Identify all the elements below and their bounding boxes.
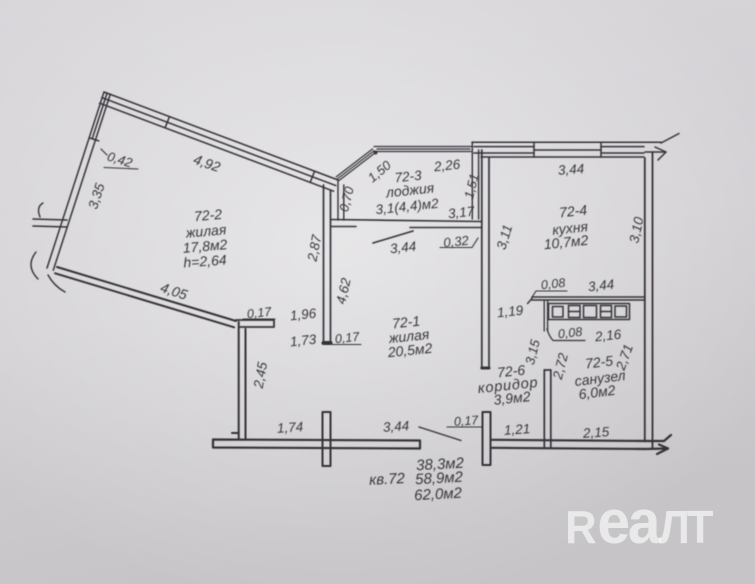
- svg-text:h=2,64: h=2,64: [183, 251, 227, 270]
- svg-text:0,17: 0,17: [246, 305, 273, 322]
- svg-text:кв.72: кв.72: [369, 470, 406, 489]
- svg-text:1,74: 1,74: [276, 419, 303, 436]
- svg-text:0,32: 0,32: [443, 233, 470, 251]
- svg-text:3,44: 3,44: [557, 161, 584, 178]
- svg-text:2,15: 2,15: [581, 424, 610, 441]
- svg-text:Т: Т: [687, 501, 714, 553]
- svg-text:a: a: [628, 487, 661, 557]
- svg-text:0,17: 0,17: [453, 413, 479, 429]
- svg-text:3,44: 3,44: [587, 277, 615, 295]
- svg-text:1,96: 1,96: [289, 306, 317, 324]
- svg-text:Л: Л: [659, 501, 690, 553]
- svg-text:0,08: 0,08: [540, 276, 566, 292]
- svg-text:1,73: 1,73: [289, 332, 317, 350]
- svg-text:e: e: [597, 487, 630, 557]
- svg-text:3,44: 3,44: [382, 418, 409, 435]
- svg-text:0,08: 0,08: [557, 325, 583, 341]
- svg-text:3,17: 3,17: [447, 204, 475, 222]
- svg-text:R: R: [565, 501, 597, 553]
- svg-text:1,21: 1,21: [503, 421, 530, 438]
- svg-text:1,19: 1,19: [496, 303, 524, 321]
- svg-text:62,0м2: 62,0м2: [414, 485, 463, 505]
- svg-text:2,16: 2,16: [593, 327, 622, 345]
- svg-text:3,44: 3,44: [389, 239, 417, 257]
- svg-text:0,17: 0,17: [334, 330, 361, 347]
- svg-text:2,26: 2,26: [432, 157, 461, 175]
